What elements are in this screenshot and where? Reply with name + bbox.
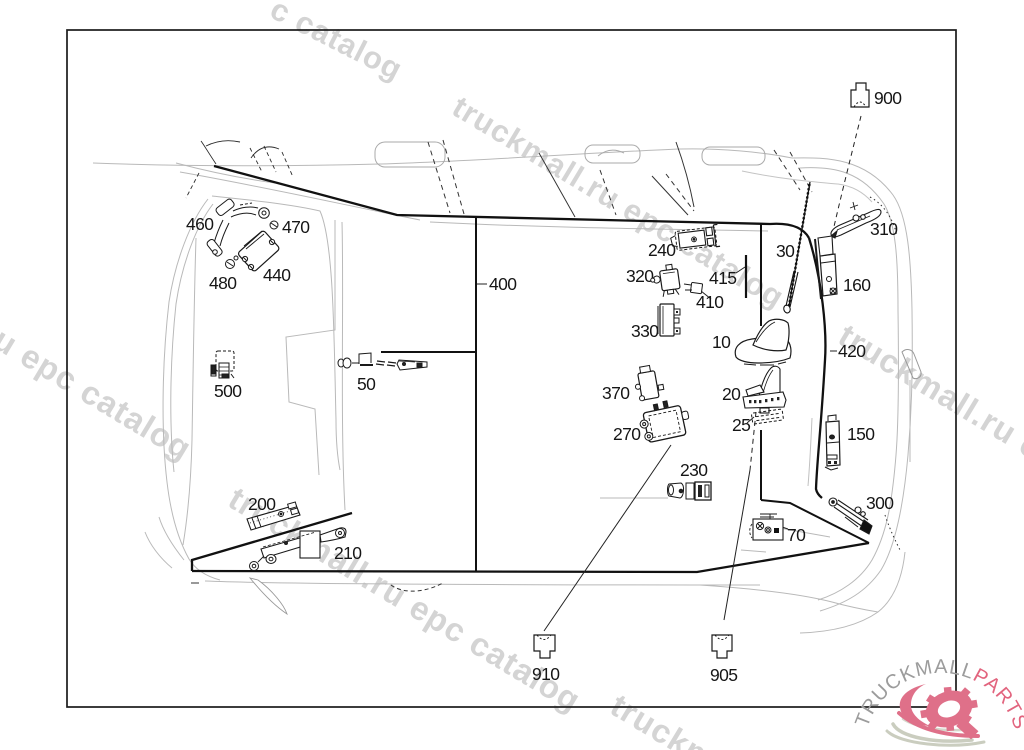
svg-text:310: 310	[870, 219, 898, 239]
svg-text:210: 210	[334, 543, 362, 563]
svg-text:70: 70	[787, 525, 806, 545]
svg-text:300: 300	[866, 493, 894, 513]
svg-text:910: 910	[532, 664, 560, 684]
svg-text:270: 270	[613, 424, 641, 444]
svg-text:460: 460	[186, 214, 214, 234]
svg-text:905: 905	[710, 665, 737, 685]
svg-text:900: 900	[874, 88, 902, 108]
svg-text:200: 200	[248, 494, 276, 514]
svg-text:400: 400	[489, 274, 517, 294]
svg-text:415: 415	[709, 268, 736, 288]
svg-text:10: 10	[712, 332, 731, 352]
svg-text:420: 420	[838, 341, 866, 361]
svg-text:30: 30	[776, 241, 795, 261]
svg-text:150: 150	[847, 424, 875, 444]
svg-text:370: 370	[602, 383, 630, 403]
svg-text:480: 480	[209, 273, 237, 293]
svg-text:160: 160	[843, 275, 871, 295]
svg-text:330: 330	[631, 321, 659, 341]
svg-text:25: 25	[732, 415, 750, 435]
svg-text:50: 50	[357, 374, 376, 394]
svg-text:320: 320	[626, 266, 654, 286]
svg-text:470: 470	[282, 217, 310, 237]
svg-text:20: 20	[722, 384, 741, 404]
svg-text:230: 230	[680, 460, 708, 480]
svg-text:500: 500	[214, 381, 242, 401]
svg-text:410: 410	[696, 292, 724, 312]
svg-text:440: 440	[263, 265, 291, 285]
